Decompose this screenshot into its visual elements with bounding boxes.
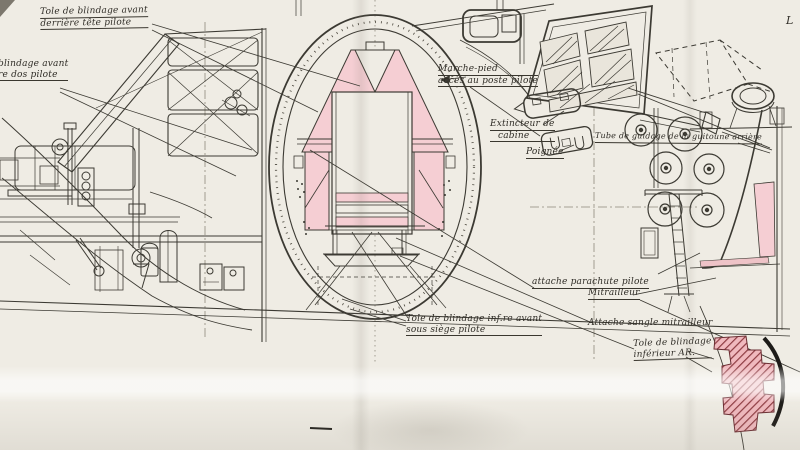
label-line: Tole de blindage inf.re avant [406, 314, 542, 325]
label-line: Extincteur de [490, 119, 555, 131]
rear-deck [640, 40, 800, 450]
label-attache-parachute: attache parachute pilote [532, 277, 649, 289]
canopy-glazing [540, 22, 637, 112]
gun-ring [732, 83, 774, 109]
label-mitrailleur: Mitrailleur [588, 288, 640, 300]
label-edge-fragment: L [786, 16, 794, 27]
label-attache-sangle: Attache sangle mitrailleur [588, 318, 713, 329]
rear-armor-panel-pink [754, 182, 775, 257]
label-line: blindage avant [0, 59, 68, 70]
label-blindage-inf-ar: Tole de blindage inférieur AR. [633, 336, 712, 361]
label-line: Poignée [526, 147, 564, 159]
label-poignee: Poignée [526, 147, 564, 159]
label-line: accès au poste pilote [438, 76, 538, 88]
paper-corner-stain [0, 0, 15, 17]
label-line: sous siège pilote [406, 325, 542, 337]
blueprint-scan: Tole de blindage avant derrière tête pil… [0, 0, 800, 450]
label-line: derrière tête pilote [40, 17, 148, 30]
label-line: re dos pilote [0, 70, 68, 82]
label-line: cabine [490, 131, 555, 143]
label-extincteur: Extincteur de cabine [490, 119, 555, 142]
fuselage-cross-section [269, 15, 481, 319]
label-line: Marche-pied [438, 64, 538, 76]
label-line: attache parachute pilote [532, 277, 649, 289]
fold-mark [310, 428, 332, 429]
rear-armor-plate-hatched [714, 336, 774, 432]
label-line: L [786, 16, 794, 27]
label-tube-guidage: Tube de guidage de la guitoune arrière [595, 131, 762, 144]
label-blindage-inf-avant: Tole de blindage inf.re avant sous siège… [406, 314, 542, 336]
label-line: Attache sangle mitrailleur [588, 318, 713, 329]
label-line: Tube de guidage de la guitoune arrière [595, 131, 762, 144]
label-blindage-dos: blindage avant re dos pilote [0, 59, 68, 81]
label-line: Mitrailleur [588, 288, 640, 300]
blueprint-drawing [0, 0, 800, 450]
label-marchepied: Marche-pied accès au poste pilote [438, 64, 538, 87]
cockpit-equipment [0, 90, 250, 292]
label-blindage-tete: Tole de blindage avant derrière tête pil… [40, 5, 148, 30]
